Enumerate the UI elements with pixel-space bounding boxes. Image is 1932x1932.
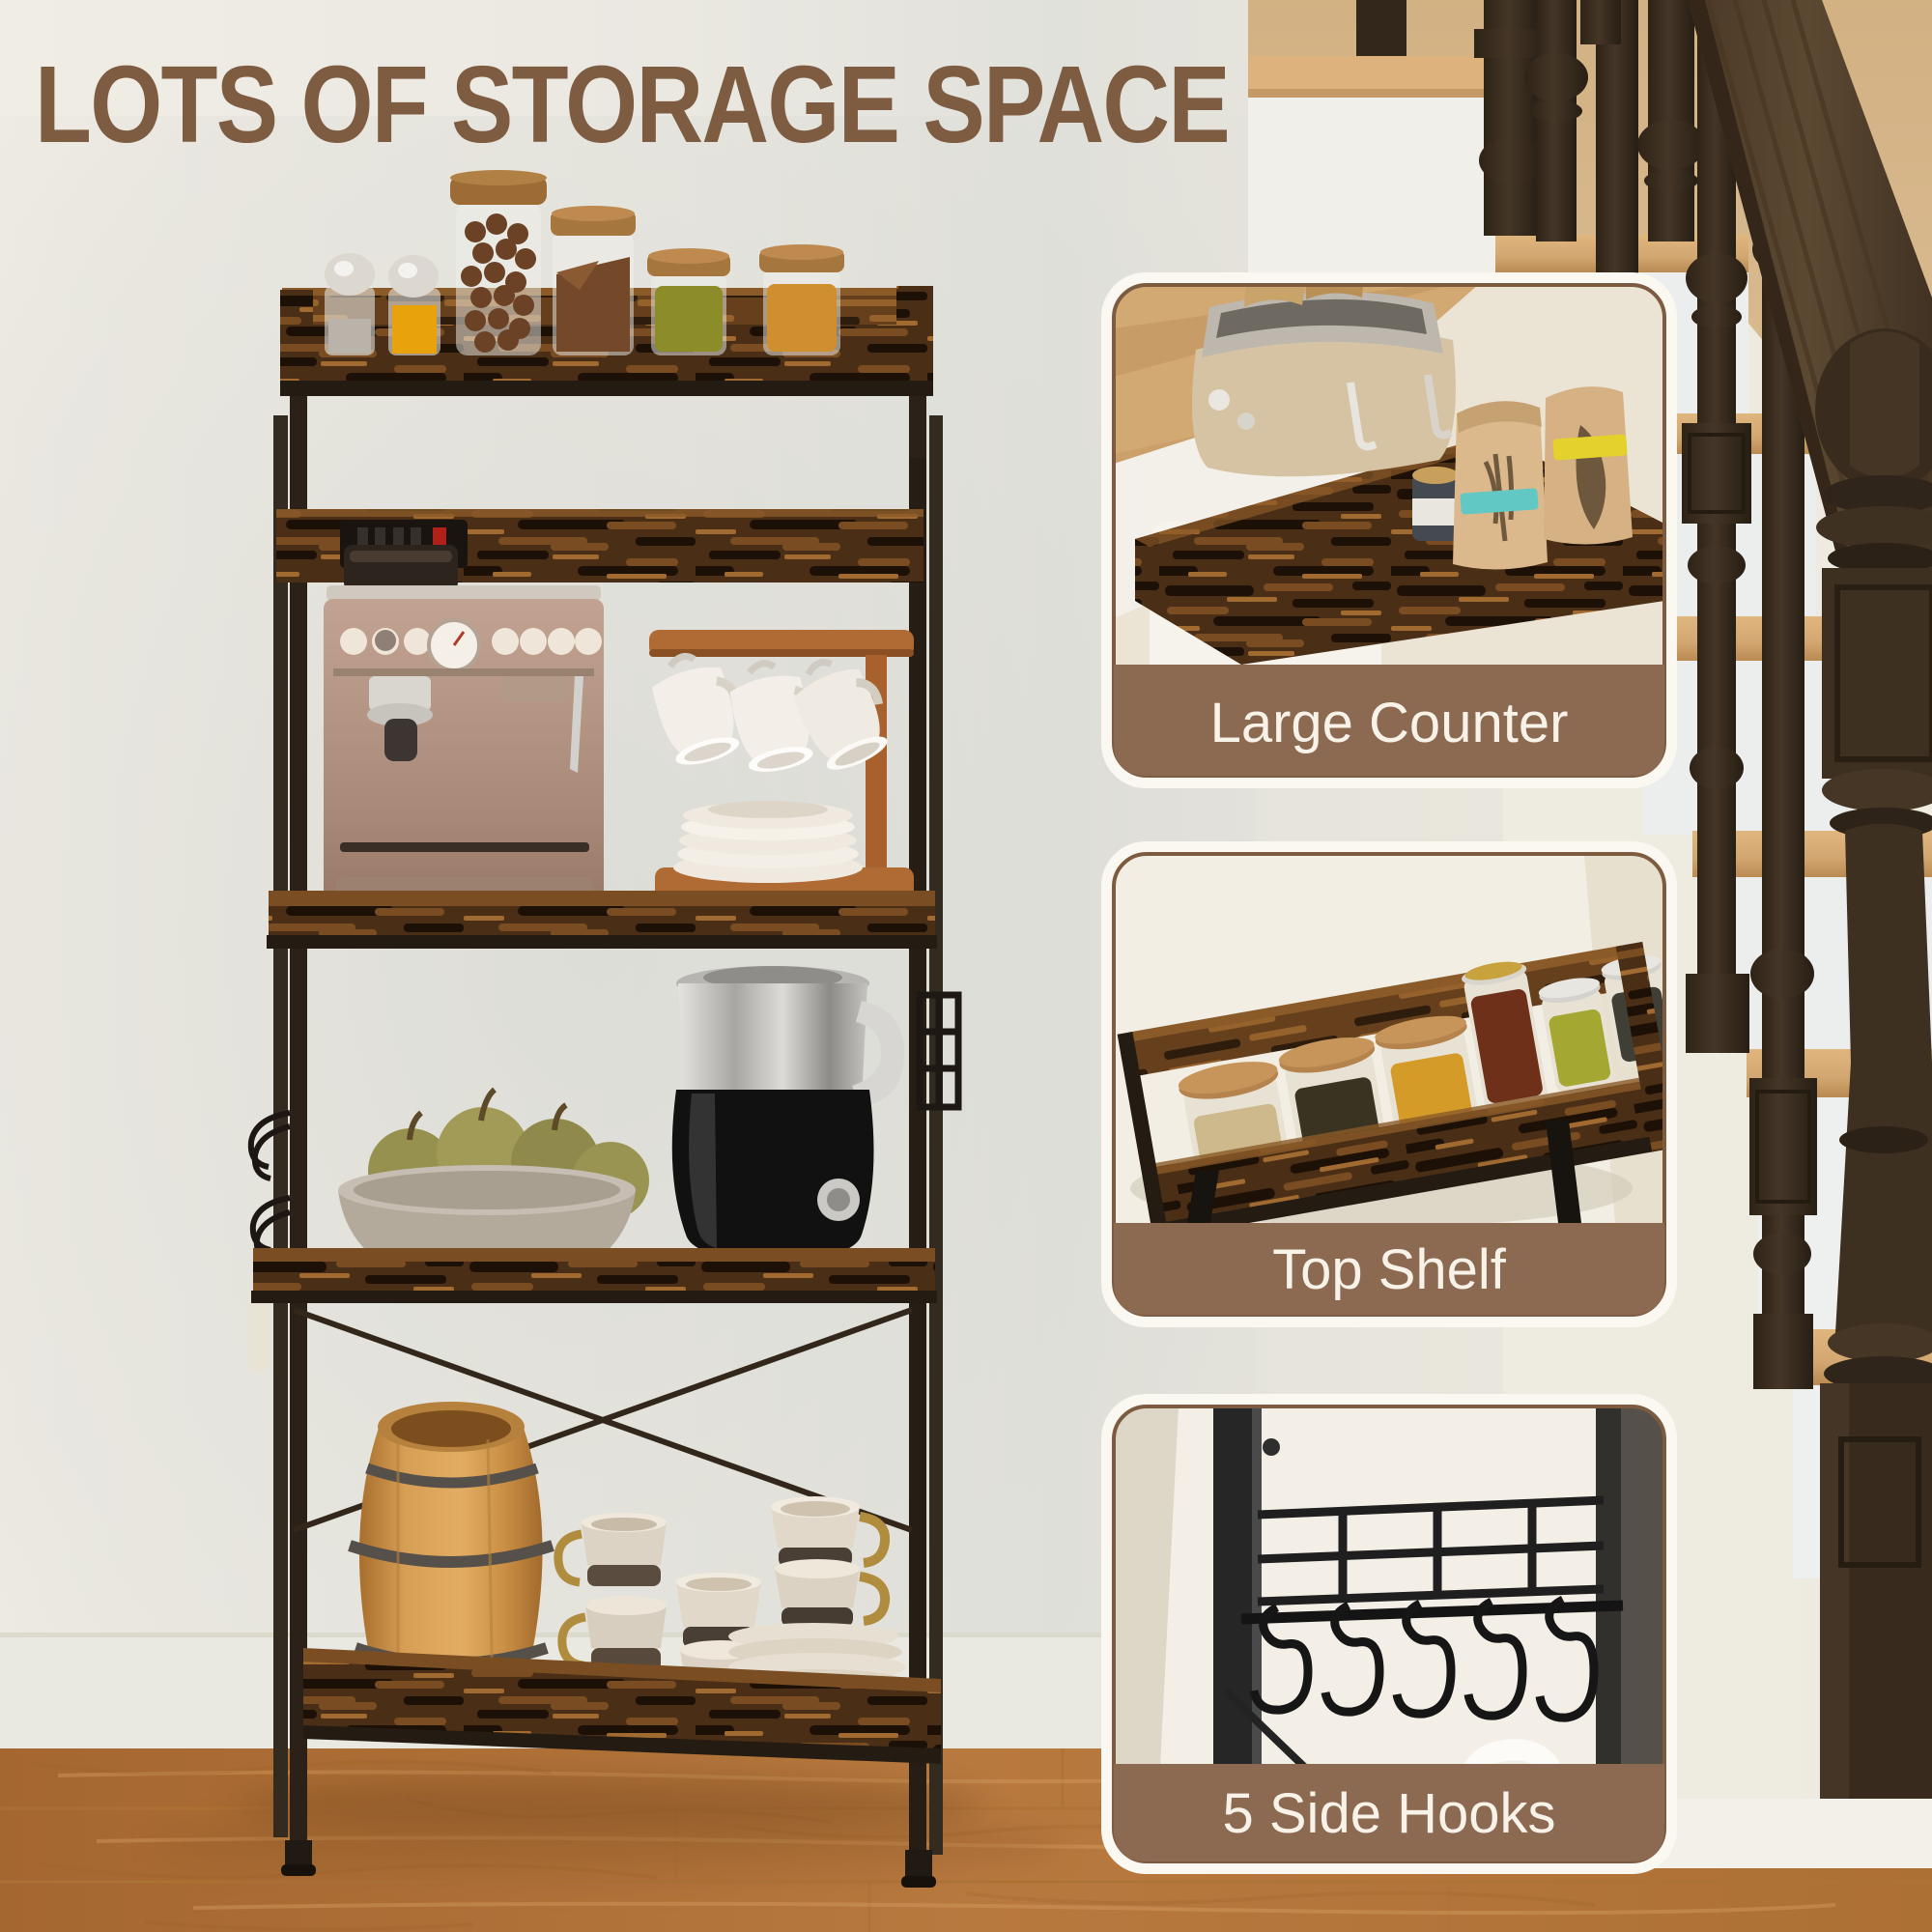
svg-text:Large Counter: Large Counter <box>1210 692 1569 754</box>
svg-text:5 Side Hooks: 5 Side Hooks <box>1223 1782 1556 1845</box>
svg-text:LOTS OF STORAGE SPACE: LOTS OF STORAGE SPACE <box>35 43 1229 165</box>
svg-text:Top Shelf: Top Shelf <box>1272 1238 1507 1301</box>
